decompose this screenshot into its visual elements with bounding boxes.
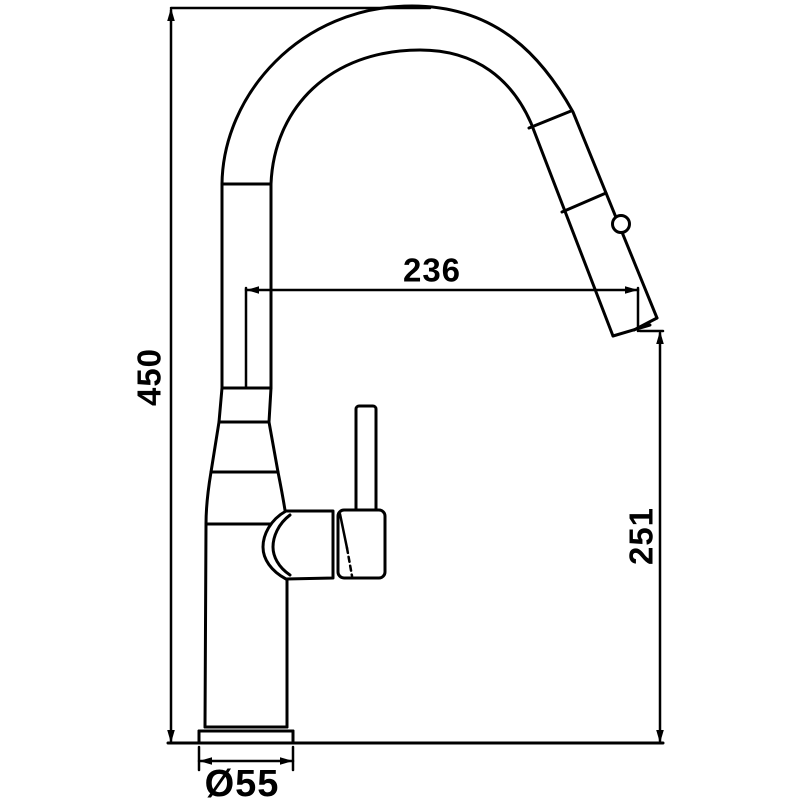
dim-label-spout-reach: 236 — [403, 254, 461, 287]
dimension-arrowheads — [167, 8, 664, 765]
sprayer-joint-line-1 — [529, 111, 571, 128]
dim-label-overall-height: 450 — [133, 348, 166, 406]
dim-label-base-diameter: Ø55 — [205, 765, 280, 800]
dimension-overall-height — [171, 8, 430, 741]
handle-lever — [356, 406, 376, 512]
base-flange — [199, 727, 293, 743]
dimension-spout-reach — [246, 288, 638, 387]
technical-drawing: 450 236 251 Ø55 — [0, 0, 800, 800]
dim-label-outlet-height: 251 — [625, 507, 658, 565]
neck-left-edge — [205, 184, 222, 727]
faucet-column-body — [205, 184, 287, 727]
faucet-line-drawing — [0, 0, 800, 800]
neck-right-edge — [269, 184, 287, 727]
sprayer-joint-line-2 — [562, 193, 606, 212]
sprayer-button — [613, 216, 630, 233]
